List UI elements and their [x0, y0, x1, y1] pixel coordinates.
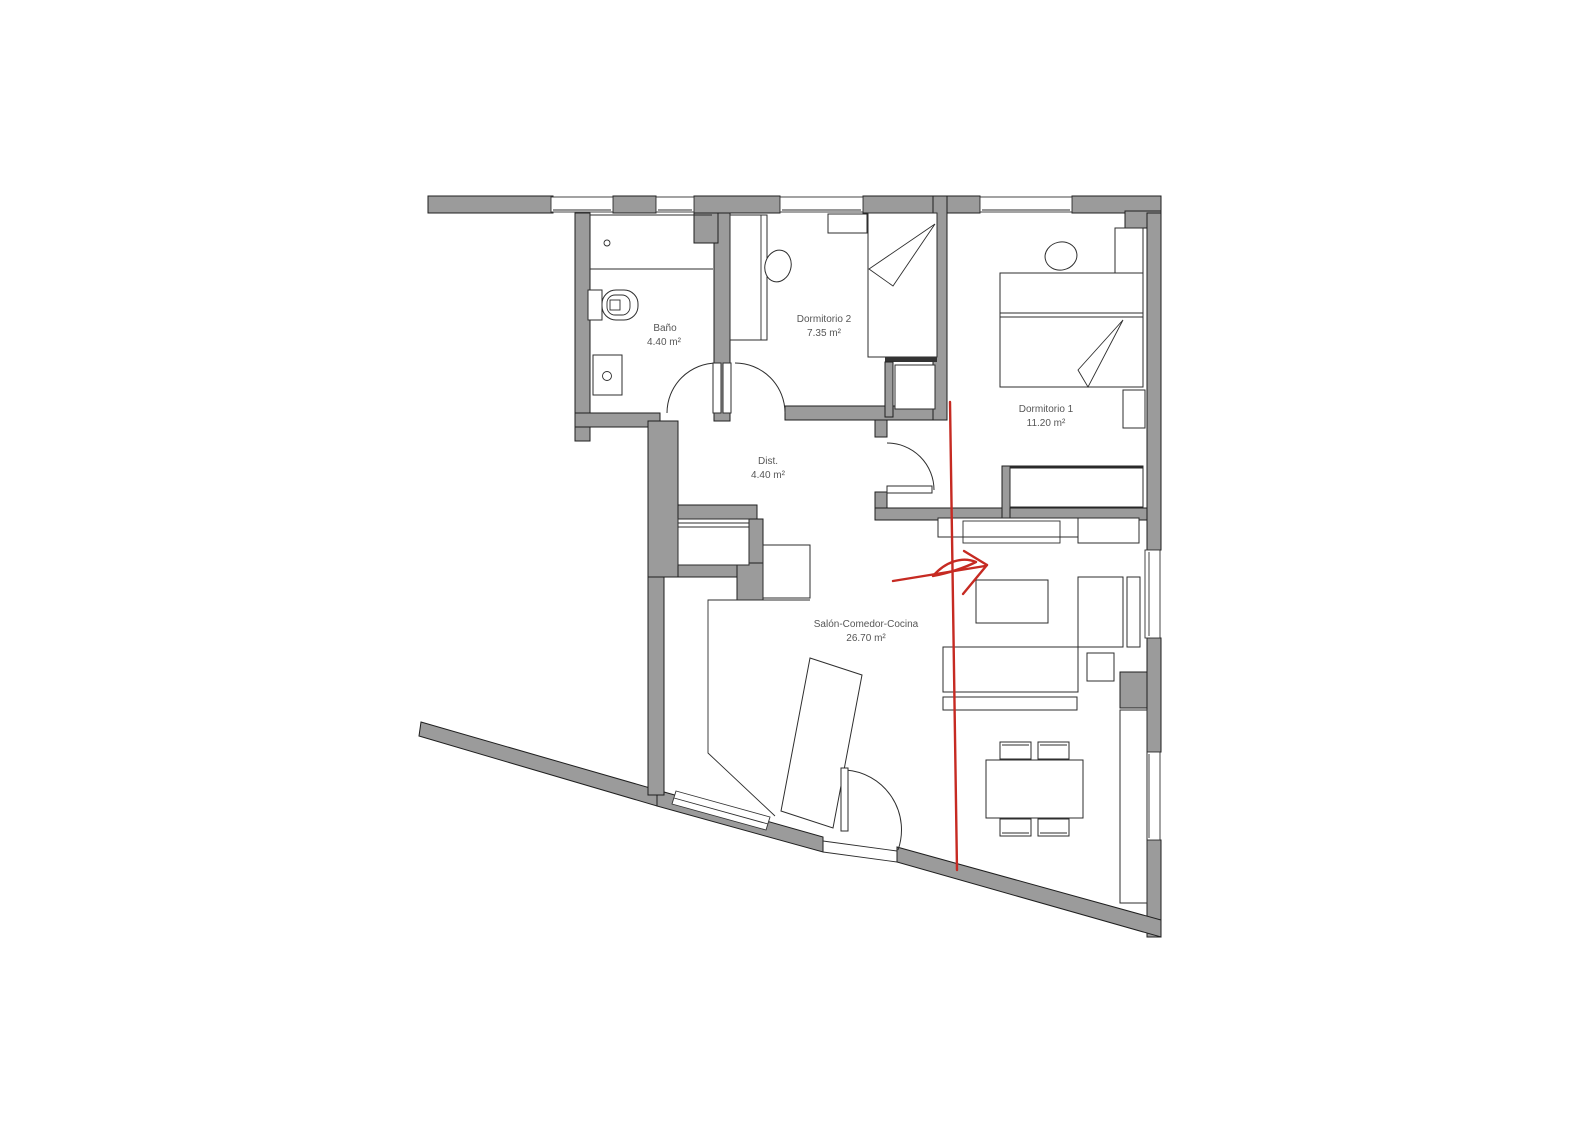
floor-plan-canvas: Baño 4.40 m² Dormitorio 2 7.35 m² Dormit…	[0, 0, 1588, 1123]
wall-bano-mullion	[694, 213, 718, 243]
counter-right	[1078, 518, 1139, 543]
wall-hall-closet-bottom	[678, 565, 737, 577]
room-area-dormitorio-1: 11.20 m²	[1027, 418, 1066, 429]
door-arc-entrance	[846, 770, 901, 850]
wall-top-seg5	[1072, 196, 1161, 213]
closet-dorm1	[1010, 466, 1143, 507]
door-leaf-dorm2	[723, 363, 731, 413]
corner-table	[1087, 653, 1114, 681]
wall-slant-left	[419, 722, 657, 806]
furniture-dormitorio-1	[1000, 228, 1145, 507]
wall-right-upper	[1147, 213, 1161, 550]
entrance-threshold-line1	[823, 841, 897, 851]
wall-top-seg2	[613, 196, 656, 213]
wall-left-thick	[648, 421, 678, 577]
sofa-back-strip	[943, 697, 1077, 710]
door-arc-dorm2	[735, 363, 785, 413]
room-area-salon: 26.70 m²	[846, 633, 886, 644]
nightstand-dorm2	[895, 365, 935, 409]
wall-top-seg3	[694, 196, 780, 213]
window-right-1	[1145, 550, 1160, 638]
kitchen-cabinet	[763, 545, 810, 598]
dining-set	[986, 742, 1083, 836]
wardrobe-column	[1120, 710, 1147, 903]
room-area-bano: 4.40 m²	[647, 337, 682, 348]
wall-left-thin	[648, 577, 664, 795]
bed-dorm1	[1000, 273, 1143, 387]
shelf-dorm2	[828, 214, 867, 233]
sofa-vertical	[1078, 577, 1123, 647]
bed-dorm2-headline	[885, 357, 937, 362]
room-label-bano: Baño	[653, 323, 677, 334]
wall-bano-bottom	[575, 413, 660, 427]
wall-top-seg4	[863, 196, 980, 213]
kitchen-island-angled	[781, 658, 862, 828]
wall-bano-left-foot	[575, 427, 590, 441]
wall-dorm2-niche-stub	[885, 362, 893, 417]
red-vertical-line	[950, 402, 957, 870]
chair-dorm1	[1042, 239, 1079, 273]
red-annotation	[893, 402, 987, 870]
shelf-dorm1	[1115, 228, 1143, 273]
room-label-dist: Dist.	[758, 456, 778, 467]
door-arc-dorm1	[887, 443, 934, 490]
door-leaf-entrance	[841, 768, 848, 831]
door-leaf-dorm1	[887, 486, 932, 493]
wall-dorm1-closet-stub	[1002, 466, 1010, 520]
wall-hall-closet-right	[749, 519, 763, 565]
hall-closet	[678, 519, 749, 565]
dining-table	[986, 760, 1083, 818]
wall-hall-closet-top	[678, 505, 757, 519]
shower-drain-icon	[604, 240, 610, 246]
coffee-table	[976, 580, 1048, 623]
sofa-horizontal	[943, 647, 1078, 692]
door-leaf-bano	[713, 363, 721, 413]
room-label-dormitorio-2: Dormitorio 2	[797, 314, 852, 325]
toilet-icon	[588, 290, 638, 320]
wall-top-left-stub	[428, 196, 553, 213]
wall-dorm1-west-stub-top	[875, 420, 887, 437]
nightstand-dorm1	[1123, 390, 1145, 428]
floor-plan-page: Baño 4.40 m² Dormitorio 2 7.35 m² Dormit…	[0, 0, 1588, 1123]
wall-hall-closet-block	[737, 563, 763, 600]
wall-right-mid	[1147, 638, 1161, 752]
room-area-dormitorio-2: 7.35 m²	[807, 328, 842, 339]
tv-board	[1127, 577, 1140, 647]
entrance-threshold-line2	[823, 852, 897, 862]
wall-right-bump	[1120, 672, 1147, 708]
room-label-dormitorio-1: Dormitorio 1	[1019, 404, 1074, 415]
room-label-salon: Salón-Comedor-Cocina	[814, 619, 919, 630]
door-arc-bano	[667, 363, 717, 413]
sink-icon	[593, 355, 622, 395]
room-area-dist: 4.40 m²	[751, 470, 786, 481]
bed-dorm2	[868, 213, 937, 357]
